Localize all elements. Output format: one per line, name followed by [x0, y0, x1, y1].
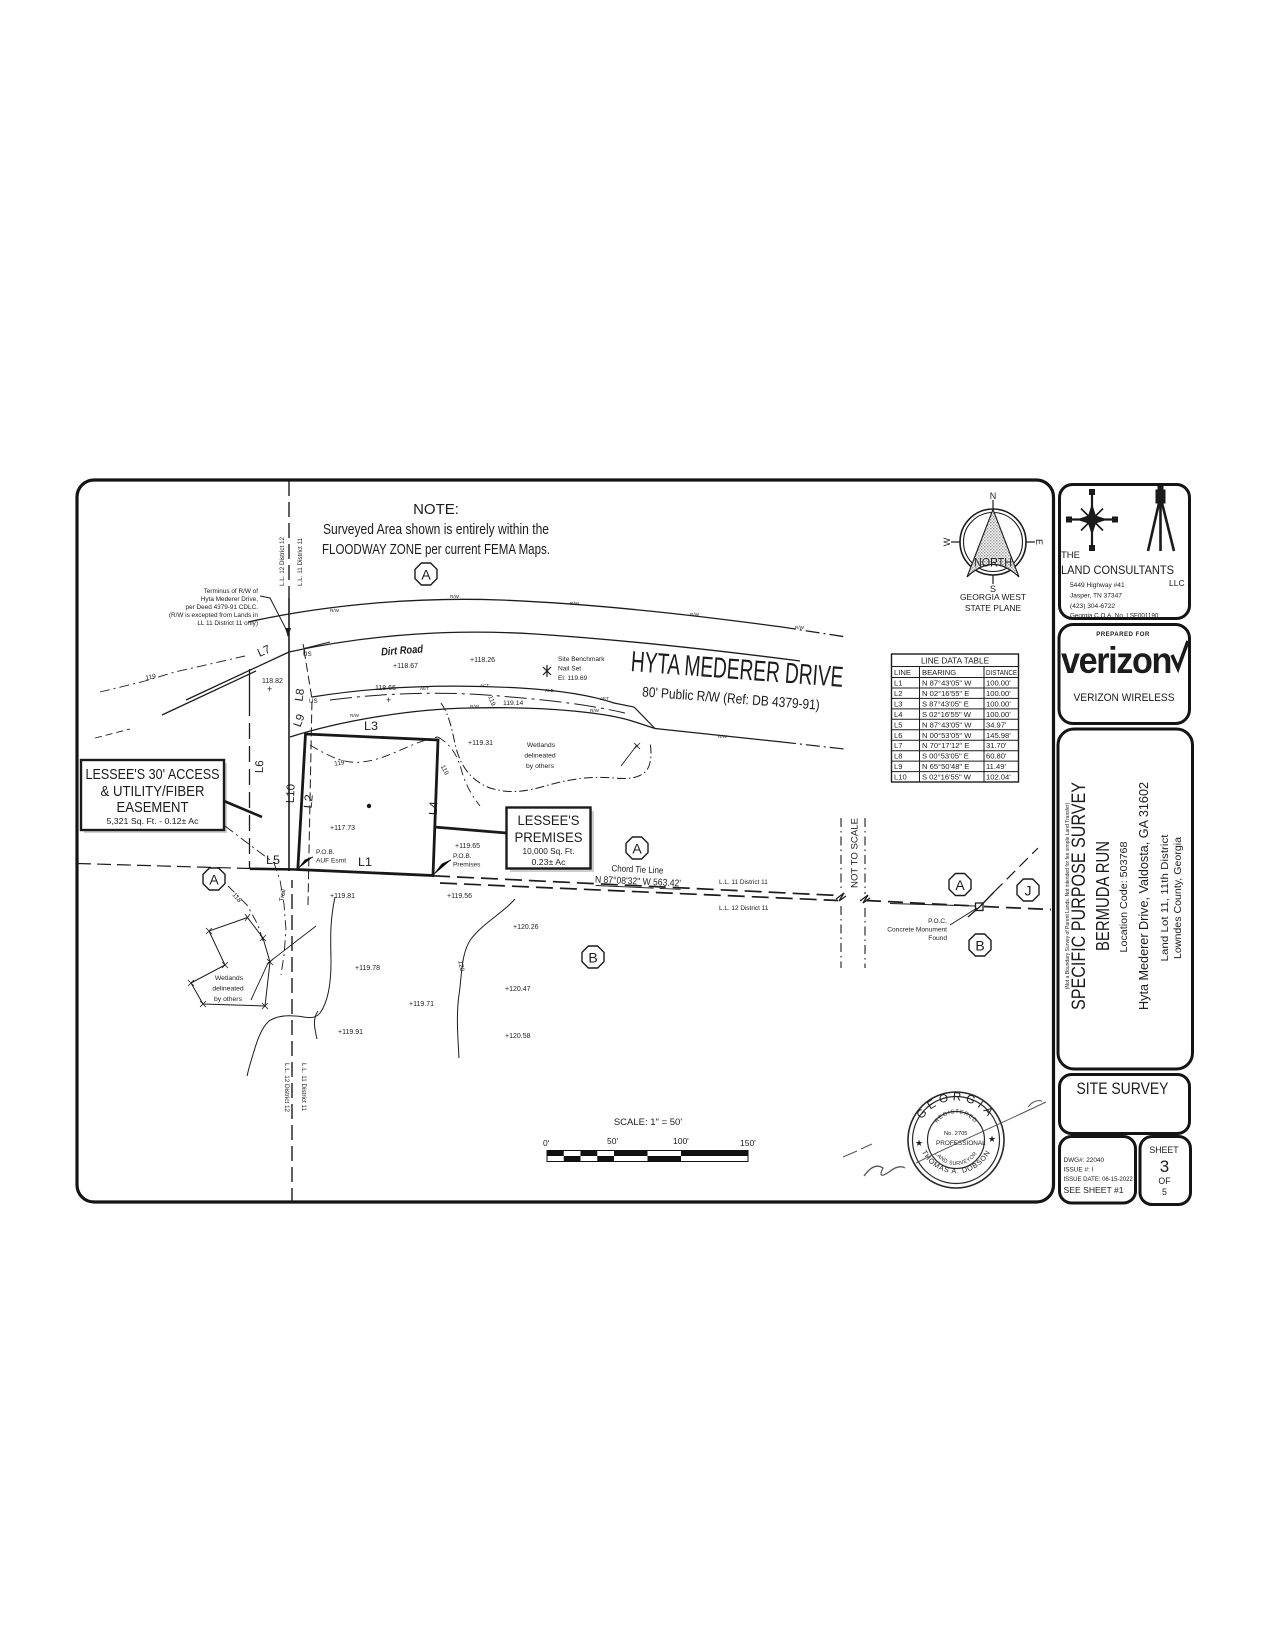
svg-text:LINE: LINE: [894, 668, 911, 677]
svg-text:BERMUDA RUN: BERMUDA RUN: [1093, 841, 1113, 951]
svg-text:ACT: ACT: [480, 683, 489, 688]
svg-text:Concrete Monument: Concrete Monument: [887, 927, 947, 934]
svg-text:P.O.B.: P.O.B.: [453, 853, 472, 860]
svg-text:+119.91: +119.91: [338, 1029, 363, 1036]
svg-text:LESSEE'S: LESSEE'S: [518, 813, 580, 828]
svg-text:+119.56: +119.56: [447, 893, 472, 900]
svg-text:L5: L5: [266, 855, 280, 867]
svg-text:L.L. 12 District 12: L.L. 12 District 12: [283, 1063, 290, 1112]
svg-text:L7: L7: [894, 741, 902, 750]
svg-text:FLOODWAY ZONE per current FEMA: FLOODWAY ZONE per current FEMA Maps.: [322, 541, 550, 558]
svg-text:AET: AET: [600, 696, 609, 701]
svg-text:+119.65: +119.65: [455, 843, 480, 850]
svg-text:& UTILITY/FIBER: & UTILITY/FIBER: [101, 784, 205, 800]
svg-text:L6: L6: [254, 760, 266, 773]
svg-text:S 02°16'55" W: S 02°16'55" W: [922, 710, 972, 719]
svg-text:L4: L4: [894, 710, 902, 719]
svg-text:119.14: 119.14: [503, 700, 524, 707]
svg-text:Lowndes County, Georgia: Lowndes County, Georgia: [1172, 837, 1184, 959]
svg-text:R/W: R/W: [718, 734, 728, 739]
svg-text:★: ★: [915, 1138, 923, 1148]
svg-text:J: J: [1025, 883, 1032, 899]
svg-text:Premises: Premises: [453, 862, 481, 869]
svg-text:LLC: LLC: [1169, 578, 1185, 588]
svg-text:R/W: R/W: [795, 625, 805, 630]
svg-text:L6: L6: [894, 731, 902, 740]
svg-text:LINE DATA TABLE: LINE DATA TABLE: [921, 657, 990, 666]
svg-text:60.80': 60.80': [986, 752, 1007, 761]
svg-text:by others: by others: [214, 996, 243, 1003]
svg-text:Georgia C.O.A. No. LSF001190: Georgia C.O.A. No. LSF001190: [1070, 613, 1159, 620]
svg-text:GEORGIA WEST: GEORGIA WEST: [960, 592, 1026, 602]
svg-text:L.L. 11 District 11: L.L. 11 District 11: [300, 1063, 307, 1112]
svg-text:L.L. 11 District 11: L.L. 11 District 11: [719, 879, 768, 886]
svg-text:delineated: delineated: [212, 986, 244, 993]
svg-text:A: A: [209, 872, 219, 888]
svg-text:THE: THE: [1061, 550, 1080, 561]
svg-text:L1: L1: [358, 857, 372, 869]
svg-text:R/W: R/W: [590, 708, 600, 713]
svg-text:L10: L10: [894, 773, 907, 782]
svg-text:N 65°50'48" E: N 65°50'48" E: [922, 762, 969, 771]
svg-text:verizon: verizon: [1061, 640, 1171, 681]
svg-text:ISSUE DATE: 06-15-2022: ISSUE DATE: 06-15-2022: [1064, 1177, 1134, 1183]
svg-text:Jasper, TN 37347: Jasper, TN 37347: [1070, 593, 1122, 600]
svg-text:+117.73: +117.73: [330, 825, 355, 832]
svg-text:LAND CONSULTANTS: LAND CONSULTANTS: [1061, 563, 1174, 577]
svg-text:10,000 Sq. Ft.: 10,000 Sq. Ft.: [523, 847, 575, 856]
svg-text:VERIZON WIRELESS: VERIZON WIRELESS: [1074, 692, 1175, 704]
svg-text:A: A: [632, 841, 642, 857]
svg-text:Hyta Mederer Drive, Valdosta,: Hyta Mederer Drive, Valdosta, GA 31602: [1137, 782, 1151, 1010]
svg-text:E: E: [1034, 539, 1044, 545]
svg-text:0.23± Ac: 0.23± Ac: [532, 858, 566, 867]
svg-text:+120.58: +120.58: [505, 1033, 531, 1040]
svg-text:B: B: [975, 938, 984, 954]
svg-text:P.O.B.: P.O.B.: [316, 849, 335, 856]
svg-text:5,321 Sq. Ft. - 0.12± Ac: 5,321 Sq. Ft. - 0.12± Ac: [107, 817, 199, 826]
svg-text:L3: L3: [364, 721, 378, 733]
svg-text:100.00': 100.00': [986, 710, 1011, 719]
svg-text:118.66: 118.66: [375, 685, 396, 692]
svg-text:DISTANCE: DISTANCE: [986, 668, 1017, 677]
svg-text:N 87°43'05" W: N 87°43'05" W: [922, 679, 972, 688]
svg-text:delineated: delineated: [524, 753, 556, 760]
svg-text:P.O.C.: P.O.C.: [928, 918, 947, 925]
svg-text:L.L. 12 District 12: L.L. 12 District 12: [279, 537, 286, 586]
svg-text:R/W: R/W: [570, 601, 580, 606]
svg-text:★: ★: [988, 1134, 996, 1144]
svg-text:100.00': 100.00': [986, 689, 1011, 698]
svg-text:W: W: [942, 537, 952, 546]
svg-text:NORTH: NORTH: [974, 558, 1012, 570]
svg-text:L8: L8: [894, 752, 902, 761]
svg-text:PREMISES: PREMISES: [515, 830, 583, 845]
svg-text:by others: by others: [526, 763, 555, 770]
svg-text:R/W: R/W: [450, 594, 460, 599]
svg-text:+119.71: +119.71: [409, 1001, 434, 1008]
svg-text:150': 150': [740, 1138, 756, 1148]
svg-text:ALE: ALE: [545, 688, 554, 693]
svg-text:L3: L3: [894, 699, 902, 708]
svg-text:100.00': 100.00': [986, 699, 1011, 708]
svg-text:+119.31: +119.31: [468, 740, 493, 747]
svg-text:(423) 304-6722: (423) 304-6722: [1070, 603, 1115, 610]
svg-text:R/W: R/W: [470, 704, 480, 709]
svg-text:NOTE:: NOTE:: [413, 501, 459, 518]
svg-text:Site Benchmark: Site Benchmark: [558, 656, 605, 663]
svg-text:El: 119.69: El: 119.69: [558, 675, 588, 682]
svg-text:AET: AET: [420, 686, 429, 691]
svg-text:ISSUE #: I: ISSUE #: I: [1064, 1167, 1094, 1174]
svg-text:LL 11 District 11 only): LL 11 District 11 only): [197, 620, 258, 627]
svg-text:L9: L9: [894, 762, 902, 771]
svg-text:Land Lot 11, 11th District: Land Lot 11, 11th District: [1159, 834, 1171, 961]
svg-text:+120.26: +120.26: [513, 924, 539, 931]
svg-text:+120.47: +120.47: [505, 986, 531, 993]
svg-text:3: 3: [1160, 1157, 1169, 1176]
svg-text:+: +: [386, 695, 391, 705]
svg-text:102.04': 102.04': [986, 773, 1011, 782]
svg-text:R/W: R/W: [350, 713, 360, 718]
svg-text:A: A: [955, 877, 965, 893]
svg-text:50': 50': [607, 1136, 618, 1146]
svg-text:SCALE: 1" = 50': SCALE: 1" = 50': [614, 1117, 682, 1128]
svg-text:L.L. 12 District 11: L.L. 12 District 11: [719, 905, 769, 912]
svg-text:Location Code: 503768: Location Code: 503768: [1118, 841, 1130, 952]
svg-text:+119.81: +119.81: [330, 893, 355, 900]
svg-text:Nail Set: Nail Set: [558, 666, 581, 673]
svg-text:L10: L10: [285, 784, 298, 804]
svg-text:L2: L2: [302, 794, 315, 809]
svg-text:R/W: R/W: [690, 612, 700, 617]
svg-text:LESSEE'S 30' ACCESS: LESSEE'S 30' ACCESS: [86, 767, 220, 783]
svg-text:34.97': 34.97': [986, 720, 1007, 729]
svg-text:Hyta Mederer Drive,: Hyta Mederer Drive,: [201, 596, 258, 603]
svg-text:L5: L5: [894, 720, 902, 729]
svg-text:Surveyed Area shown is entirel: Surveyed Area shown is entirely within t…: [323, 521, 549, 538]
svg-text:L2: L2: [894, 689, 902, 698]
svg-text:SHEET: SHEET: [1149, 1145, 1179, 1155]
svg-text:Found: Found: [928, 935, 947, 942]
svg-text:SPECIFIC PURPOSE SURVEY: SPECIFIC PURPOSE SURVEY: [1068, 782, 1090, 1010]
svg-text:+119.78: +119.78: [355, 965, 380, 972]
svg-text:5: 5: [1162, 1187, 1167, 1197]
svg-text:OF: OF: [1158, 1176, 1171, 1186]
svg-text:0': 0': [543, 1138, 550, 1148]
svg-text:Wetlands: Wetlands: [527, 742, 556, 749]
svg-text:R/W: R/W: [330, 608, 340, 613]
svg-text:SEE SHEET #1: SEE SHEET #1: [1064, 1185, 1124, 1195]
svg-text:118.82: 118.82: [262, 678, 283, 685]
svg-text:L1: L1: [894, 679, 902, 688]
svg-text:STATE PLANE: STATE PLANE: [965, 603, 1022, 613]
svg-text:+118.67: +118.67: [393, 663, 418, 670]
svg-text:(R/W is excepted from Lands in: (R/W is excepted from Lands in: [169, 612, 259, 619]
svg-text:L.L. 11 District 11: L.L. 11 District 11: [297, 537, 304, 586]
svg-text:BEARING: BEARING: [922, 668, 956, 677]
svg-text:N 87°43'05" W: N 87°43'05" W: [922, 720, 972, 729]
svg-text:S 02°16'55" W: S 02°16'55" W: [922, 773, 972, 782]
svg-text:S 00°53'05" E: S 00°53'05" E: [922, 752, 969, 761]
svg-text:100.00': 100.00': [986, 679, 1011, 688]
svg-text:PREPARED FOR: PREPARED FOR: [1096, 631, 1150, 638]
svg-text:119: 119: [334, 759, 346, 767]
svg-text:DWG#: 22040: DWG#: 22040: [1064, 1157, 1105, 1164]
svg-text:+: +: [267, 684, 272, 694]
svg-text:AUF Esmt: AUF Esmt: [316, 858, 346, 865]
svg-text:+118.26: +118.26: [470, 657, 495, 664]
svg-text:100': 100': [673, 1136, 689, 1146]
svg-text:S 87°43'05" E: S 87°43'05" E: [922, 699, 969, 708]
svg-text:B: B: [588, 950, 597, 966]
svg-text:per Deed 4379-91 CDLC.: per Deed 4379-91 CDLC.: [186, 604, 259, 611]
svg-text:145.98': 145.98': [986, 731, 1011, 740]
svg-text:A: A: [421, 567, 431, 583]
svg-text:N 70°17'12" E: N 70°17'12" E: [922, 741, 969, 750]
svg-text:11.49': 11.49': [986, 762, 1006, 771]
svg-text:N: N: [990, 491, 997, 501]
svg-text:NOT TO SCALE: NOT TO SCALE: [850, 818, 861, 888]
svg-text:Terminus of R/W of: Terminus of R/W of: [204, 588, 259, 595]
svg-text:Wetlands: Wetlands: [215, 975, 244, 982]
svg-text:L4: L4: [428, 800, 441, 815]
svg-text:US: US: [309, 698, 318, 705]
svg-text:N 00°53'05" W: N 00°53'05" W: [922, 731, 972, 740]
svg-text:SITE SURVEY: SITE SURVEY: [1077, 1080, 1169, 1098]
svg-text:N 02°16'55" E: N 02°16'55" E: [922, 689, 969, 698]
svg-text:EASEMENT: EASEMENT: [117, 800, 189, 816]
svg-text:No. 2705: No. 2705: [944, 1131, 968, 1137]
svg-text:31.70': 31.70': [986, 741, 1007, 750]
svg-text:5449 Highway #41: 5449 Highway #41: [1070, 582, 1125, 589]
svg-text:L8: L8: [293, 688, 307, 702]
